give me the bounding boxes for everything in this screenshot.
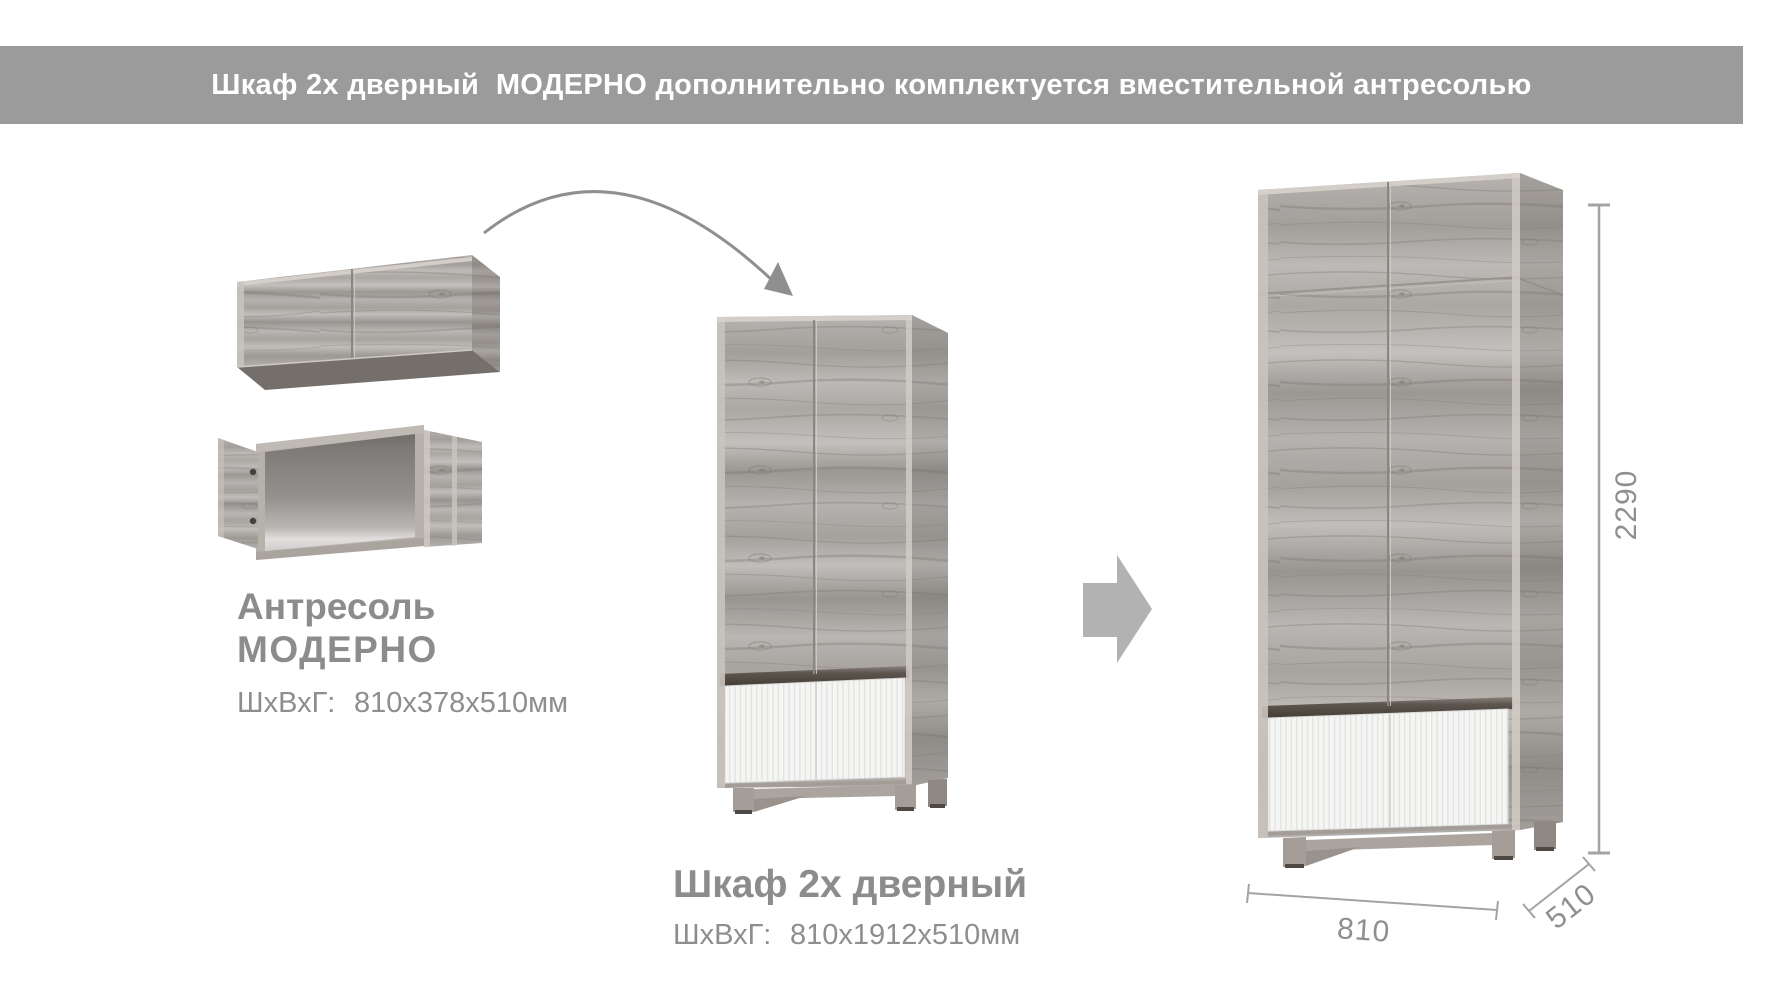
antresol-dims-value: 810х378х510мм [354,687,568,719]
tall-wardrobe-right-stile [1512,173,1520,831]
width-dimension-label: 810 [1336,912,1391,949]
antresol-open-image [218,425,482,560]
wardrobe-dimensions-row: ШхВхГ:810х1912х510мм [673,919,1027,952]
antresol-name-line1: Антресоль [237,586,568,629]
antresol-open-left-door-edge [218,438,224,538]
antresol-open-right-door-edge [424,430,430,547]
wardrobe-title: Шкаф 2х дверный [673,862,1027,907]
tall-wardrobe-left-stile [1258,189,1268,838]
wardrobe-caption: Шкаф 2х дверный ШхВхГ:810х1912х510мм [673,862,1027,952]
antresol-caption: Антресоль МОДЕРНО ШхВхГ:810х378х510мм [237,586,568,720]
wardrobe-left-stile [717,317,725,788]
curved-arrow-icon [484,192,793,296]
scene-graphic: 2290 810 510 [0,0,1778,1000]
antresol-dimensions-row: ШхВхГ:810х378х510мм [237,687,568,720]
tall-wardrobe-fluted-panel [1268,709,1508,831]
hinge-top [250,469,256,475]
wardrobe-dims-value: 810х1912х510мм [790,919,1020,951]
wardrobe-dims-label: ШхВхГ: [673,919,790,952]
wardrobe-side-shade [912,315,948,786]
height-dimension: 2290 [1588,205,1643,853]
promo-page: Шкаф 2х дверный МОДЕРНО дополнительно ко… [0,0,1778,1000]
right-arrow-icon [1083,555,1152,663]
tall-wardrobe-side-shade [1520,173,1563,830]
wardrobe-with-antresol-image [1258,173,1563,868]
antresol-dims-label: ШхВхГ: [237,687,354,720]
depth-dimension-label: 510 [1540,877,1602,936]
antresol-left-stile [237,281,244,367]
antresol-open-right-door-fold [452,436,457,546]
antresol-name-line2: МОДЕРНО [237,629,568,672]
wardrobe-image [717,315,948,814]
antresol-closed-image [237,255,500,390]
hinge-bottom [250,518,256,524]
width-dimension: 810 [1247,884,1498,949]
antresol-open-cavity [265,434,415,551]
wardrobe-right-stile [906,315,912,786]
depth-dimension: 510 [1523,857,1602,936]
height-dimension-label: 2290 [1610,470,1643,541]
